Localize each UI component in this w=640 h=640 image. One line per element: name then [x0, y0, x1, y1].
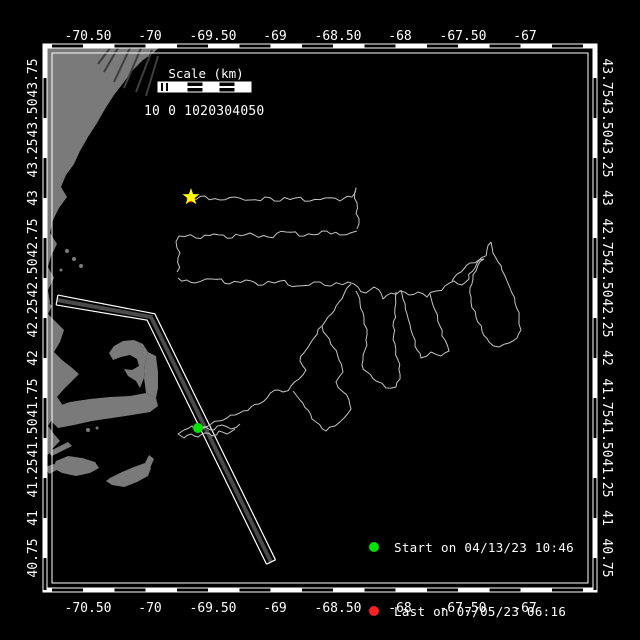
frame-tick-dash [594, 398, 597, 438]
axis-label: -70.50 [65, 601, 112, 616]
scalebar-segment-stripe [187, 86, 203, 88]
legend-row-last: Last on 07/05/23 06:16 [366, 598, 597, 624]
islet [96, 427, 99, 430]
last-dot-icon [366, 603, 382, 619]
frame-tick-dash [594, 318, 597, 358]
axis-label: -69.50 [190, 29, 237, 44]
axis-label: 43 [26, 190, 41, 206]
frame-tick-dash [594, 78, 597, 118]
frame-tick-dash [52, 589, 83, 592]
scalebar-segment [203, 82, 219, 92]
axis-label: 42.75 [599, 218, 614, 257]
legend-start-label: Start on 04/13/23 10:46 [394, 540, 574, 555]
frame-tick-dash [44, 318, 47, 358]
glider-track [356, 291, 400, 388]
glider-track [191, 188, 359, 229]
scalebar-hatch-tick [161, 83, 163, 91]
scalebar-segment-stripe [219, 86, 235, 88]
islet [60, 269, 63, 272]
axis-label: 42.25 [599, 298, 614, 337]
axis-label: 40.75 [26, 538, 41, 577]
legend-row-start: Start on 04/13/23 10:46 [366, 534, 597, 560]
glider-track [178, 242, 491, 299]
glider-track [401, 290, 449, 358]
frame-tick-dash [302, 589, 333, 592]
axis-label: 42 [26, 350, 41, 366]
axis-label: 41.25 [599, 458, 614, 497]
islet [86, 428, 90, 432]
axis-label: 41 [26, 510, 41, 526]
axis-label: 41 [599, 510, 614, 526]
cape-cod-hook [109, 340, 148, 388]
frame-tick-dash [240, 589, 271, 592]
scalebar-segment [235, 82, 251, 92]
legend-last-label: Last on 07/05/23 06:16 [394, 604, 566, 619]
nantucket [106, 463, 151, 487]
axis-label: 43.50 [599, 98, 614, 137]
axis-label: 43.75 [599, 58, 614, 97]
axis-label: 42.75 [26, 218, 41, 257]
axis-label: -67.50 [440, 29, 487, 44]
axis-label: -69.50 [190, 601, 237, 616]
scalebar-title: Scale (km) [150, 66, 262, 81]
frame-tick-dash [44, 398, 47, 438]
frame-tick-dash [44, 238, 47, 278]
scalebar-hatch-tick [166, 83, 168, 91]
marthas-vineyard [53, 456, 99, 476]
cape-cod-lower-arm [50, 393, 158, 428]
glider-track [197, 326, 322, 429]
axis-label: 43.75 [26, 58, 41, 97]
axis-label: 43.25 [26, 138, 41, 177]
axis-label: -68.50 [315, 601, 362, 616]
frame-tick-dash [365, 45, 396, 48]
massachusetts-coast [46, 300, 79, 470]
axis-label: -69 [263, 601, 286, 616]
axis-label: -68.50 [315, 29, 362, 44]
frame-tick-dash [594, 238, 597, 278]
axis-label: 41.25 [26, 458, 41, 497]
axis-label: 40.75 [599, 538, 614, 577]
frame-tick-dash [115, 589, 146, 592]
scalebar-numbers: 10 0 1020304050 [144, 104, 264, 119]
axis-label: -67 [513, 29, 536, 44]
frame-tick-dash [552, 45, 583, 48]
axis-label: 42.25 [26, 298, 41, 337]
axis-label: 43.25 [599, 138, 614, 177]
frame-tick-dash [44, 78, 47, 118]
start-marker [193, 423, 203, 433]
frame-tick-dash [44, 478, 47, 518]
axis-label: 42.50 [599, 258, 614, 297]
axis-label: -70 [138, 29, 161, 44]
frame-tick-dash [427, 45, 458, 48]
axis-label: -69 [263, 29, 286, 44]
axis-label: -68 [388, 29, 411, 44]
frame-tick-dash [240, 45, 271, 48]
axis-label: 43.50 [26, 98, 41, 137]
scalebar-hatch [158, 82, 171, 92]
axis-label: 41.50 [26, 418, 41, 457]
glider-track-map: -70.50-70-69.50-69-68.50-68-67.50-67-70.… [0, 0, 640, 640]
scalebar-segment [171, 82, 187, 92]
frame-tick-dash [44, 158, 47, 198]
axis-label: 41.75 [599, 378, 614, 417]
shipping-lane-edge [58, 295, 276, 560]
frame-tick-dash [44, 558, 47, 590]
frame-tick-dash [594, 158, 597, 198]
frame-tick-dash [52, 45, 83, 48]
frame-tick-dash [490, 45, 521, 48]
glider-track [452, 242, 521, 347]
axis-label: 41.50 [599, 418, 614, 457]
legend: Start on 04/13/23 10:46 Last on 07/05/23… [366, 496, 597, 640]
axis-label: 42 [599, 350, 614, 366]
glider-track [176, 231, 357, 272]
islet [72, 257, 76, 261]
frame-tick-dash [302, 45, 333, 48]
islet [79, 264, 83, 268]
axis-label: 42.50 [26, 258, 41, 297]
axis-label: 41.75 [26, 378, 41, 417]
frame-tick-dash [177, 45, 208, 48]
maine-coast [46, 47, 160, 313]
axis-label: -70.50 [65, 29, 112, 44]
shipping-lane-edge [56, 305, 266, 564]
start-dot-icon [366, 539, 382, 555]
axis-label: 43 [599, 190, 614, 206]
axis-label: -70 [138, 601, 161, 616]
islet [65, 249, 69, 253]
frame-tick-dash [177, 589, 208, 592]
glider-track [293, 284, 351, 431]
frame-tick-dash [115, 45, 146, 48]
